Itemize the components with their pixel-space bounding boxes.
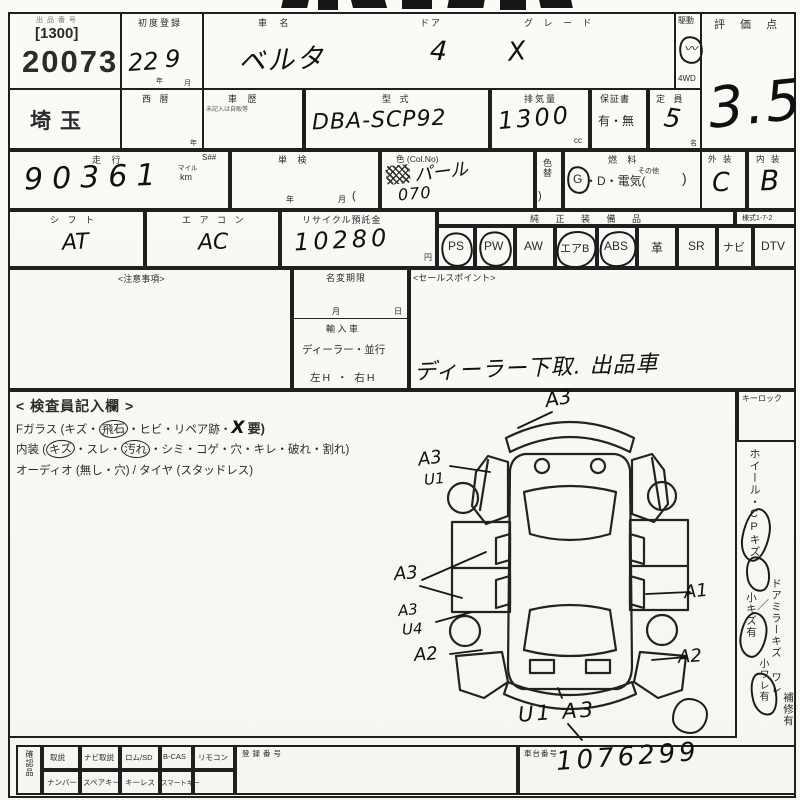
fuel-options: ・D・電気( [585,172,646,189]
cut-title-fragment [447,0,484,8]
damage-code-left-rear: A3 [397,600,419,620]
cut-title-fragment [402,0,432,9]
confirm-items-label: 確認品 [24,750,35,792]
interior-mid: ・スレ・ [75,444,121,456]
recycle-value: 10280 [293,223,391,256]
color-change-label: 色替 [541,158,554,188]
navi-manual-label: ナビ取説 [84,752,114,763]
lot-class-code: [1300] [35,25,78,42]
name-change-divider [293,318,408,319]
fuel-close-paren: ) [682,170,687,186]
region-value: 埼玉 [30,105,90,135]
doors-label: ドア [420,16,442,29]
first-reg-year: 22 [127,47,159,77]
car-diagram [390,396,730,746]
form-number: 様式1-7-2 [742,213,772,223]
inspector-title: < 検査員記入欄 > [16,396,134,416]
handle-options: 左H ・ 右H [310,370,377,385]
displacement-unit: cc [574,136,582,145]
car-name-value: ベルタ [237,36,326,79]
mileage-km-unit: km [180,172,192,182]
warranty-label: 保証書 [600,92,630,105]
western-year-unit: 年 [190,138,197,148]
drive-label: 駆動 [678,15,694,26]
grade-label: グ レ ー ド [524,16,596,29]
capacity-unit: 名 [690,138,697,148]
history-note: 未記入は自販等 [206,104,248,113]
cut-title-fragment [500,0,526,10]
equip-navi-label: ナビ [723,239,745,255]
fglass-circled-flying-stone: 飛石 [98,419,128,439]
equipment-header-label: 純 正 装 備 品 [530,212,648,225]
sidebar-slash: ／ [757,596,769,613]
damage-code-left-door: A3 [393,562,419,585]
interior-grade: B [759,164,779,198]
doors-value: 4 [429,35,448,67]
damage-code-left-rear-u4: U4 [401,619,423,638]
interior-circled-scratch: キズ [45,439,76,460]
registration-number-label: 登録番号 [242,748,284,759]
lot-label: 出品番号 [36,15,80,25]
manual-label: 取説 [50,752,65,763]
model-label: 型 式 [382,92,412,105]
damage-code-right-a2: A2 [677,645,702,668]
recycle-yen-unit: 円 [424,252,432,263]
score-value: 3.5 [705,67,800,142]
mileage-s-label: S## [202,153,216,162]
mileage-value: 90361 [23,158,165,198]
model-value: DBA-SCP92 [312,106,447,136]
tanken-year-unit: 年 [286,194,294,205]
fglass-mid: ・ヒビ・リペア跡・ [128,424,232,436]
chassis-number-label: 車台番号 [524,748,558,759]
caution-label: <注意事項> [118,272,165,285]
sidebar-repair: 補修有 [781,692,796,738]
tanken-month-unit: 月 [338,194,346,205]
damage-code-left-fender-u1: U1 [423,469,445,489]
mileage-mile-unit: マイル [178,162,198,172]
lot-number: 20073 [22,44,118,80]
fuel-other-label: その他 [638,166,659,176]
drive-handwritten-squiggle: 〰 [684,38,697,57]
equip-dtv-label: DTV [761,239,785,253]
shift-value: AT [61,229,89,255]
interior-circled-dirt: 汚れ [120,439,150,459]
keyless-label: キーレス [125,777,155,788]
fglass-post: 要) [248,421,265,436]
spare-key-label: スペアキー [83,777,120,788]
name-change-label: 名変期限 [326,271,366,284]
fglass-hand-x: X [231,418,244,438]
exterior-label: 外 装 [708,153,733,165]
first-reg-month-unit: 月 [184,78,191,88]
rom-sd-label: ロム/SD [125,752,153,763]
interior-post: ・シミ・コゲ・穴・キレ・破れ・割れ) [150,444,349,456]
equip-leather-label: 革 [651,239,663,256]
sales-point-label: <セールスポイント> [413,271,496,284]
cut-title-fragment [351,0,387,8]
grade-value: X [507,36,527,67]
first-reg-month: 9 [165,45,180,73]
tanken-label: 単 検 [278,153,311,166]
remote-label: リモコン [198,752,228,763]
damage-code-left-fender: A3 [417,446,443,470]
auction-sheet: 出品番号 [1300] 20073 埼玉 初度登録 22 年 9 月 車 名 ベ… [0,0,800,800]
cut-title-fragment [539,0,573,8]
damage-code-front: A3 [543,384,573,412]
inspector-audio-line: オーディオ (無し・穴) / タイヤ (スタッドレス) [16,462,253,478]
first-reg-year-unit: 年 [156,76,163,86]
aircon-label: エ ア コ ン [182,213,247,226]
import-options: ディーラー・並行 [302,342,385,357]
first-reg-label: 初度登録 [138,16,182,29]
car-name-label: 車 名 [258,16,294,29]
tanken-paren: ( [352,190,356,202]
aircon-value: AC [198,229,229,255]
color-number: 070 [397,183,432,205]
caution-box [8,268,292,390]
interior-pre: 内装 ( [16,444,46,456]
color-crossed-out-scribble [385,164,411,185]
warranty-options: 有・無 [598,112,634,129]
color-change-paren: ) [538,190,542,202]
western-year-label: 西 暦 [142,92,172,105]
cut-title-fragment [281,0,309,8]
number-plate-label: ナンバー [47,777,77,788]
equip-sr-label: SR [688,239,705,253]
shift-label: シ フ ト [50,213,97,226]
damage-code-left-a2: A2 [413,643,439,666]
fuel-label: 燃 料 [608,153,641,166]
name-change-month: 月 [332,306,340,317]
keylock-label: キーロック [742,393,782,404]
drive-4wd-label: 4WD [678,74,696,83]
cut-title-fragment [318,0,338,10]
inspector-interior-line: 内装 (キズ・スレ・汚れ・シミ・コゲ・穴・キレ・破れ・割れ) [16,440,349,458]
exterior-grade: C [711,167,731,198]
name-change-day: 日 [394,306,402,317]
bottom-blank-cell [193,770,235,795]
equip-aw-label: AW [524,239,543,253]
inspector-fglass-line: Fガラス (キズ・飛石・ヒビ・リペア跡・X 要) [16,418,265,438]
import-label: 輸 入 車 [326,322,358,335]
damage-code-right-door-a1: A1 [683,580,709,603]
fglass-pre: Fガラス (キズ・ [16,424,99,436]
bcas-label: B-CAS [163,752,186,761]
score-label: 評 価 点 [714,16,783,32]
